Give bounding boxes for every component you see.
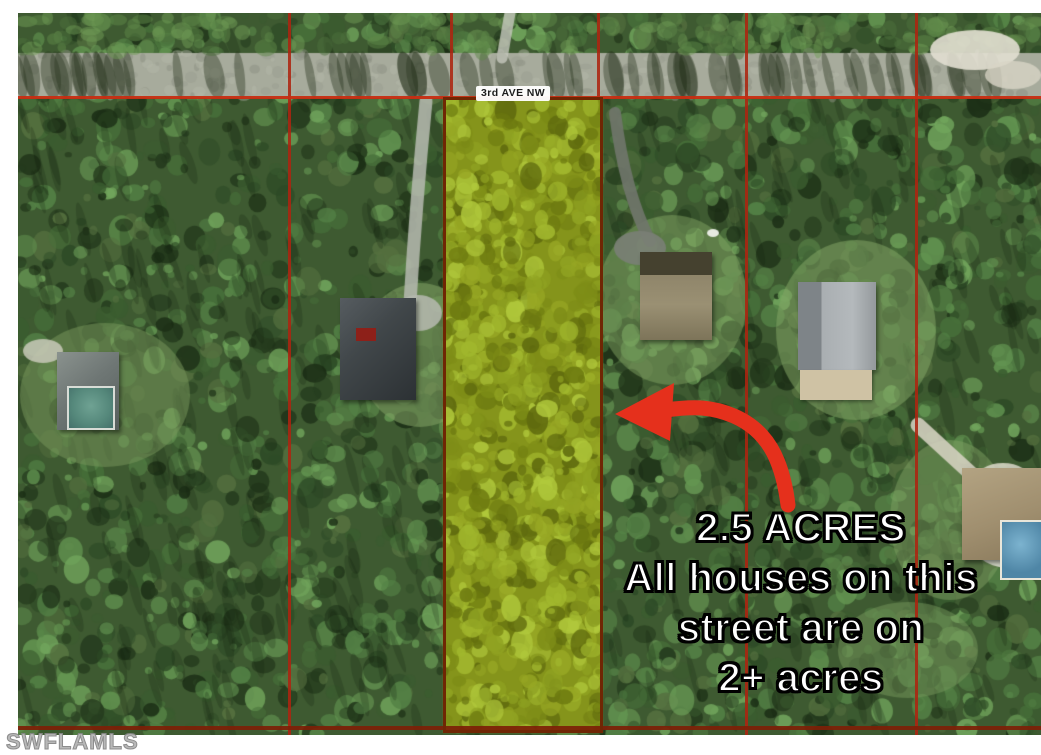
- parcel-line-vertical-1: [288, 13, 291, 735]
- annotation-line-3: street are on: [596, 603, 1006, 653]
- screened-pool: [67, 386, 115, 430]
- house-second-left: [340, 298, 416, 400]
- chimney: [356, 328, 376, 341]
- street-label: 3rd AVE NW: [476, 86, 550, 101]
- house-fourth: [798, 282, 876, 370]
- patio: [800, 370, 872, 400]
- annotation-line-4: 2+ acres: [596, 653, 1006, 703]
- house-right-of-parcel: [640, 252, 712, 340]
- parcel-line-vertical-2-top: [450, 13, 453, 100]
- mls-watermark: SWFLAMLS: [6, 729, 139, 755]
- blue-pool: [1000, 520, 1041, 580]
- parcel-line-vertical-3-top: [597, 13, 600, 97]
- annotation-line-2: All houses on this: [596, 553, 1006, 603]
- house-far-left: [57, 352, 119, 430]
- annotation-line-1: 2.5 ACRES: [596, 503, 1006, 553]
- aerial-parcel-map: 3rd AVE NW 2.5 ACRES All houses on this …: [18, 13, 1041, 735]
- highlighted-parcel: [443, 97, 603, 733]
- acreage-annotation: 2.5 ACRES All houses on this street are …: [596, 503, 1006, 703]
